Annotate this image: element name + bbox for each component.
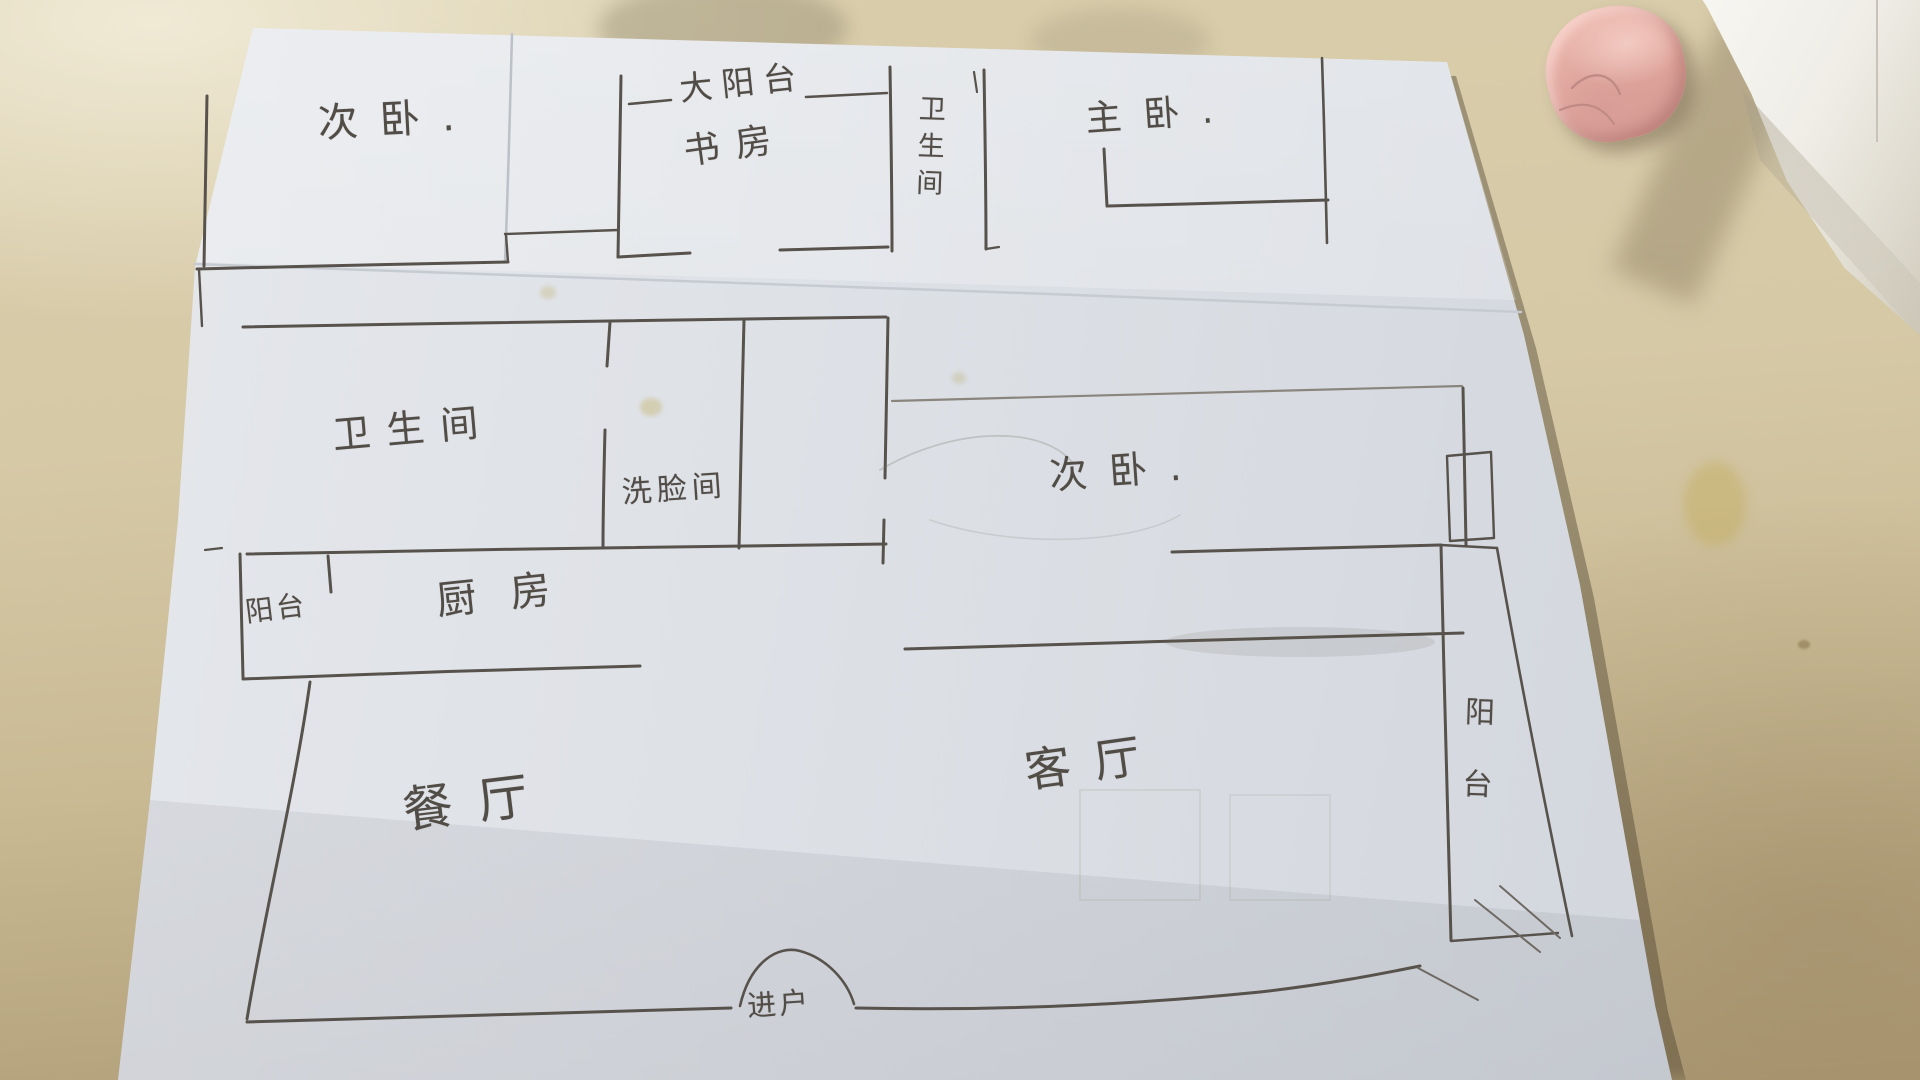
wall-kitchen-bottom	[243, 666, 640, 679]
wall-balconyL-left	[240, 554, 243, 677]
wall-bathroom-top-right	[984, 70, 986, 249]
window-box	[1447, 452, 1494, 541]
wall-master-right	[1322, 58, 1327, 243]
label-bedroom-top-left: 次卧.	[316, 83, 478, 149]
wall-balconyR-bottom	[1451, 933, 1558, 941]
paper-crease-vertical	[505, 34, 512, 262]
wall-left-connector	[199, 269, 202, 326]
wall-study-step	[505, 230, 618, 234]
label-entrance: 进户	[746, 979, 813, 1025]
hatch-stroke	[1418, 968, 1478, 1000]
wall-bedroomTL-left	[204, 96, 207, 266]
wall-master-bottom	[1108, 200, 1328, 206]
wall-central-mid	[885, 318, 888, 478]
label-master-bedroom: 主卧.	[1084, 80, 1237, 142]
paper-crease-horizontal	[195, 264, 1521, 312]
balcony-door-dash-right	[806, 93, 887, 97]
wall-bottom-right	[856, 966, 1420, 1009]
wall-washroom-left-upper	[607, 322, 610, 366]
balcony-door-dash-left	[629, 100, 671, 104]
pencil-ghost-arc	[930, 515, 1180, 539]
wall-central-stub	[883, 520, 884, 563]
label-bedroom-mid-right: 次卧.	[1047, 434, 1205, 500]
wall-bathroom-top-left	[890, 67, 892, 251]
wall-bottom-left	[247, 1008, 731, 1022]
label-balcony-right: 阳台	[1450, 695, 1499, 840]
wall-kitchen-top	[247, 544, 886, 554]
wall-study-bottom-right	[780, 247, 888, 250]
pencil-ghost-arc	[880, 436, 1072, 470]
wall-mid-long	[243, 317, 886, 327]
eraser-crease	[1572, 75, 1620, 94]
label-washroom: 洗脸间	[620, 460, 728, 511]
wall-study-bottom-left	[618, 253, 690, 257]
wall-balconyR-top	[1441, 545, 1497, 548]
wall-balconyL-kitchen-divider	[328, 556, 331, 592]
wall-washroom-left-lower	[603, 430, 605, 548]
label-balcony-left: 阳台	[243, 583, 309, 630]
wall-dash-small	[205, 548, 222, 550]
label-bathroom-top: 卫生间	[907, 94, 950, 206]
wall-master-internal	[1104, 149, 1107, 206]
wall-living-top-right	[1172, 545, 1440, 552]
photo-of-floor-plan-sketch: 次卧. 大阳台 书房 卫生间 主卧. 卫生间 洗脸间 次卧. 阳台 厨房 餐厅 …	[0, 0, 1920, 1080]
wall-bedroomMR-top	[892, 386, 1462, 401]
ghost-imprint	[1080, 790, 1200, 900]
wall-balconyR-right	[1497, 548, 1572, 936]
floor-plan-ink-drawing	[0, 0, 1920, 1080]
wall-balconyR-left	[1441, 545, 1451, 940]
wall-tick	[986, 247, 999, 249]
wall-washroom-right	[739, 320, 744, 548]
hatch-stroke	[1500, 886, 1560, 938]
eraser-crease	[1560, 105, 1614, 124]
wall-tick	[974, 72, 977, 92]
wall-bedroomMR-right	[1463, 388, 1466, 545]
wall-dining-left	[247, 682, 310, 1019]
hatch-stroke	[1475, 900, 1540, 952]
ghost-imprint	[1230, 795, 1330, 900]
pencil-smudge	[1165, 627, 1435, 657]
